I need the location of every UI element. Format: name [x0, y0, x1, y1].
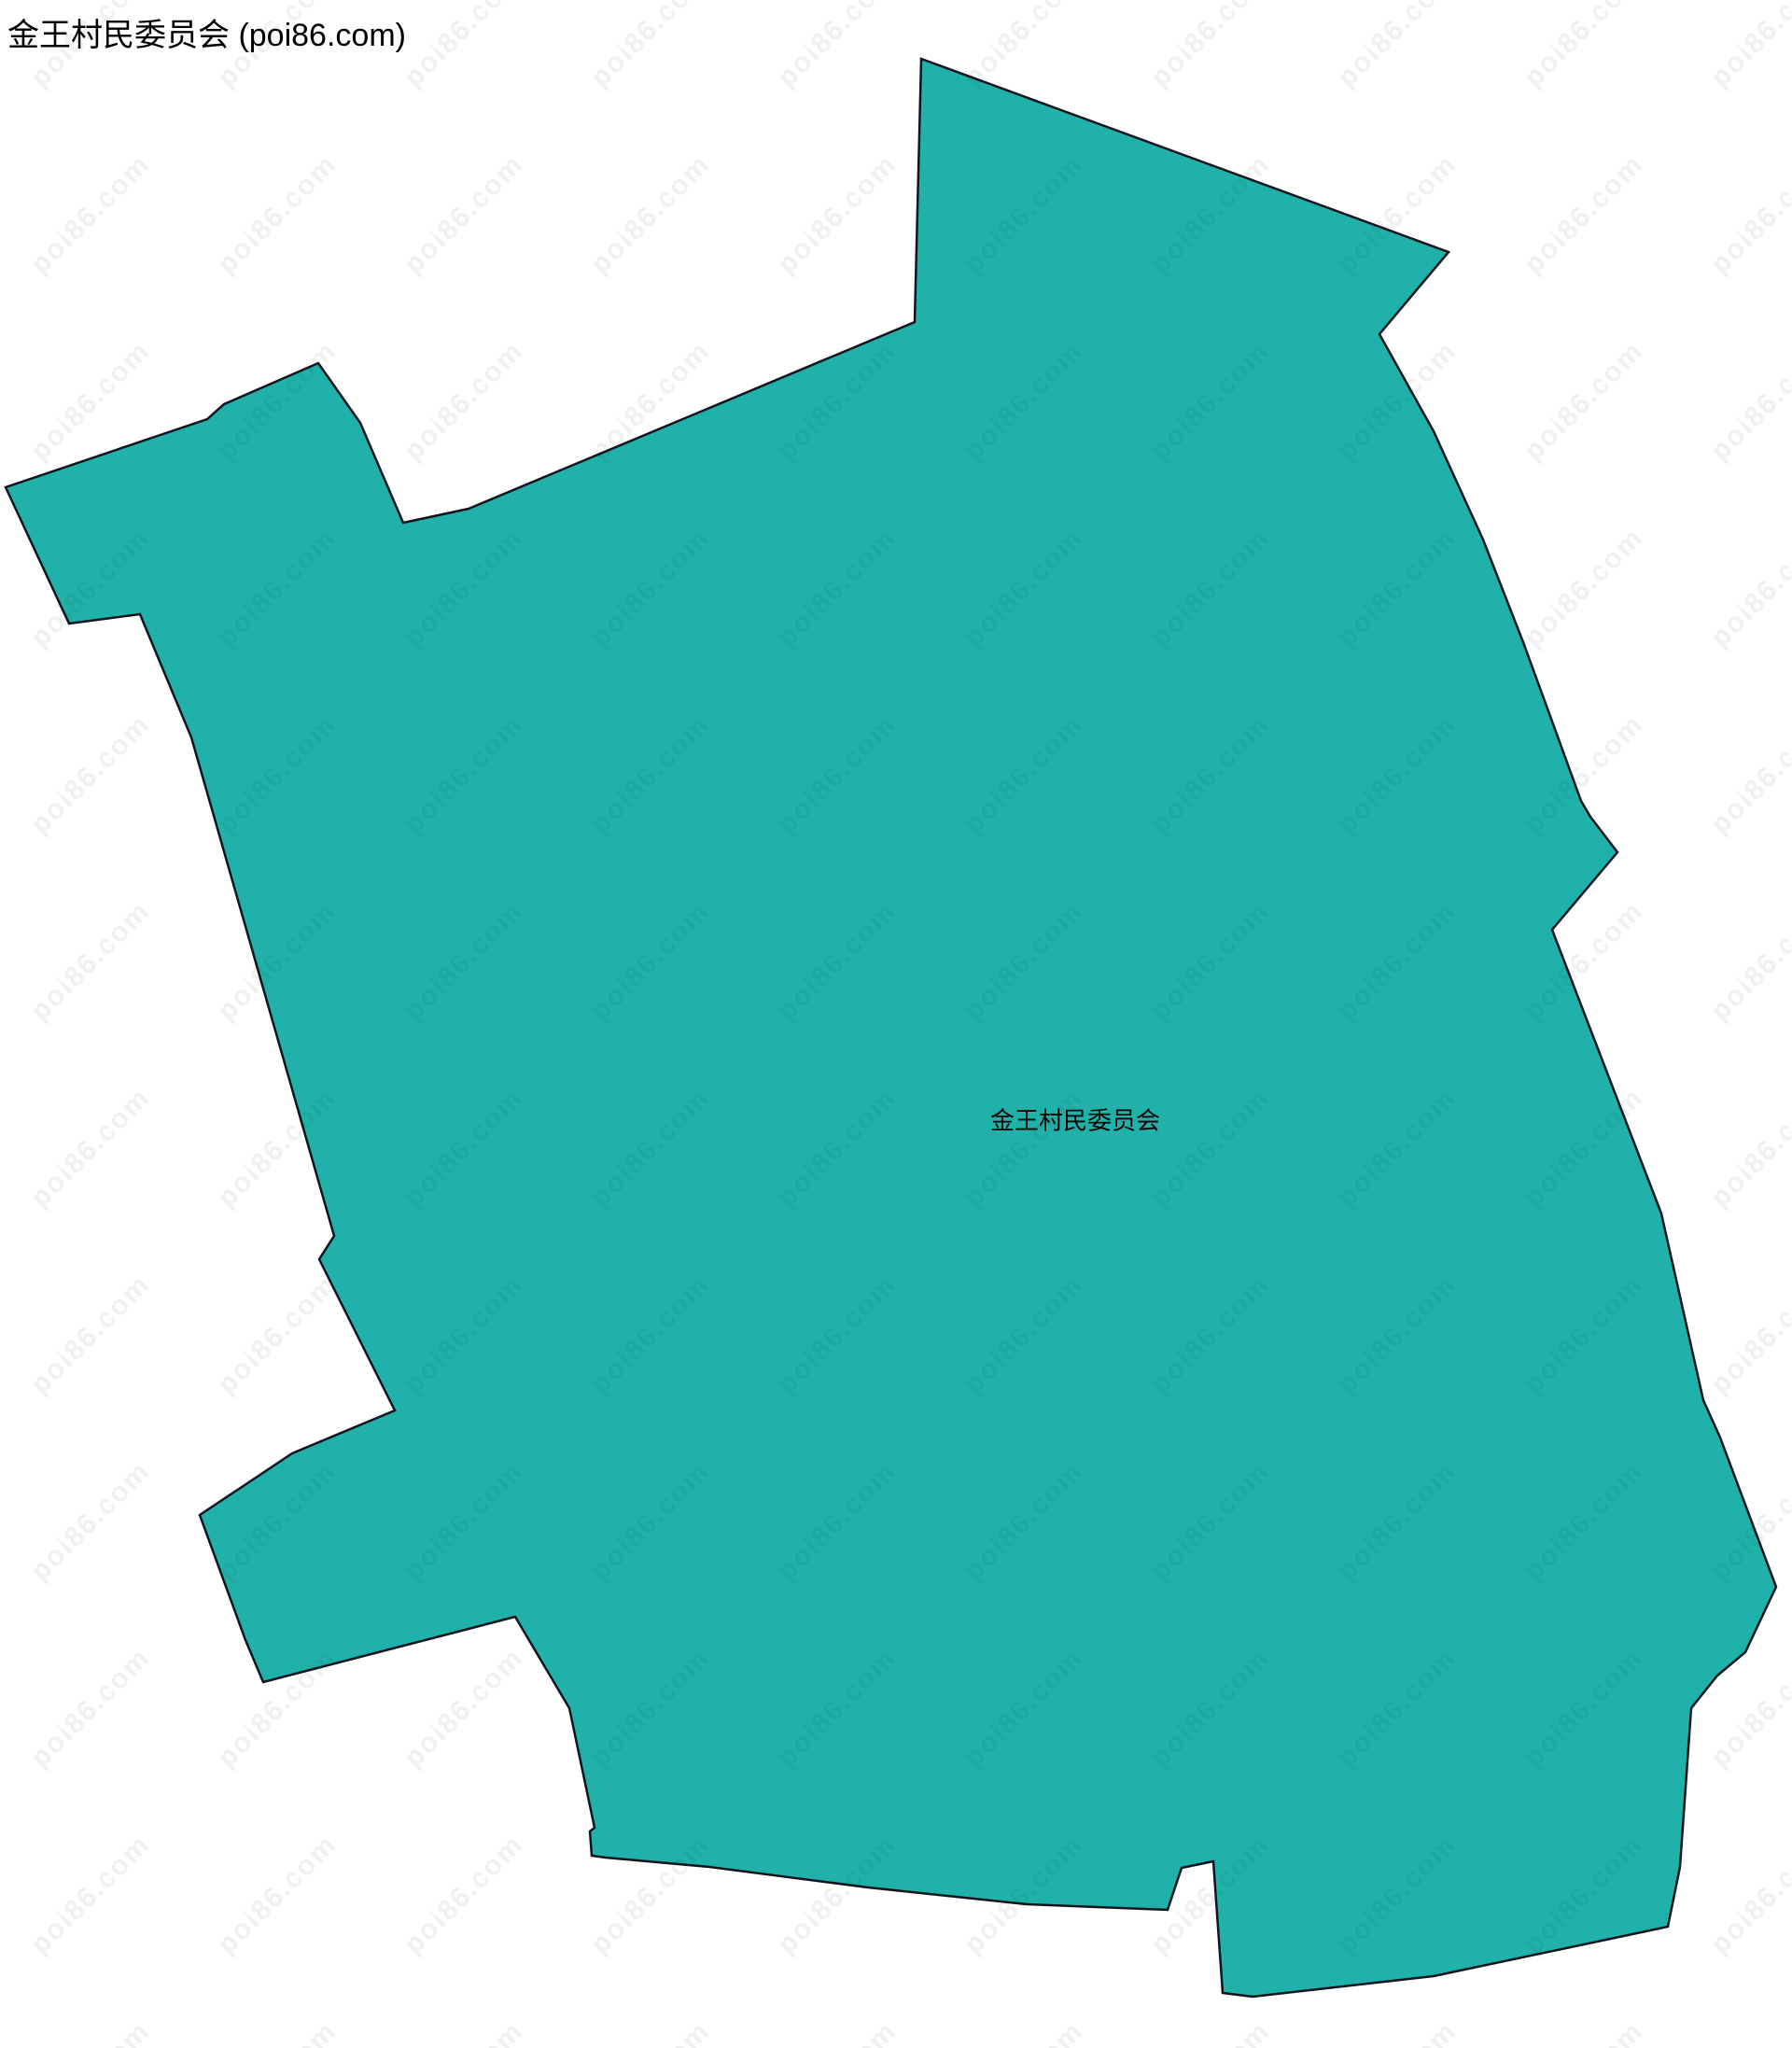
- map-canvas: [0, 0, 1792, 2048]
- page-title: 金王村民委员会 (poi86.com): [7, 9, 406, 55]
- region-label: 金王村民委员会: [990, 1102, 1160, 1137]
- region-boundary-polygon: [6, 59, 1776, 1997]
- map-screenshot: poi86.compoi86.compoi86.compoi86.compoi8…: [0, 0, 1792, 2048]
